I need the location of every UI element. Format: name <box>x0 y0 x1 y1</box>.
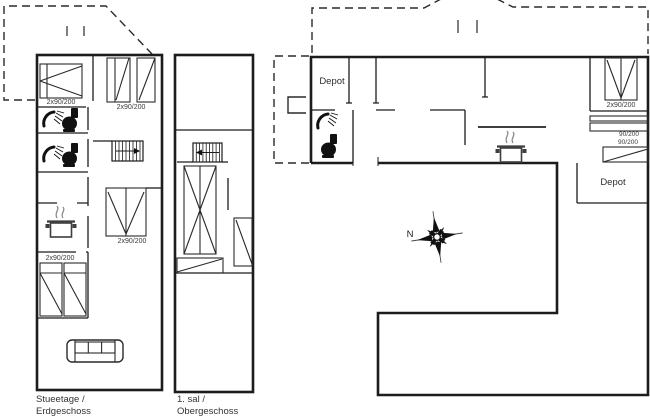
entry-step-marks <box>67 26 84 36</box>
ground-floor-plan <box>4 6 162 390</box>
floorplan-canvas <box>0 0 650 420</box>
bed-size-label: 2x90/200 <box>118 238 147 245</box>
outer-walls <box>311 57 648 395</box>
compass-rose-icon <box>407 207 466 266</box>
bed-size-label: 90/200 <box>618 140 638 147</box>
entry-step-icon <box>288 97 306 113</box>
ground-floor-caption-line1: Stueetage / <box>36 395 85 405</box>
toilet-icon <box>321 134 337 158</box>
bed-size-label: 2x90/200 <box>607 102 636 109</box>
entry-step-marks <box>458 20 477 33</box>
overview-plan <box>274 0 648 395</box>
door-ticks <box>353 157 378 166</box>
upper-floor-caption-line2: Obergeschoss <box>177 407 238 417</box>
compass-north-label: N <box>407 230 414 240</box>
upper-floor-caption-line1: 1. sal / <box>177 395 205 405</box>
interior-walls <box>311 57 648 203</box>
bed-size-label: 2x90/200 <box>46 255 75 262</box>
outer-walls <box>175 55 253 392</box>
bed-size-label: 2x90/200 <box>117 104 146 111</box>
depot-room-label: Depot <box>600 178 625 188</box>
floorplan-page: 2x90/200 2x90/200 2x90/200 2x90/200 2x90… <box>0 0 650 420</box>
shower-icon <box>318 113 338 128</box>
stairs-icon <box>112 141 143 161</box>
upper-floor-plan <box>175 55 253 392</box>
stairs-icon <box>193 143 222 162</box>
depot-room-label: Depot <box>319 77 344 87</box>
ground-floor-caption-line2: Erdgeschoss <box>36 407 91 417</box>
bed-size-label: 2x90/200 <box>47 99 76 106</box>
bed-size-label: 90/200 <box>619 132 639 139</box>
double-bed <box>605 58 637 100</box>
cooking-pot-icon <box>496 131 527 162</box>
